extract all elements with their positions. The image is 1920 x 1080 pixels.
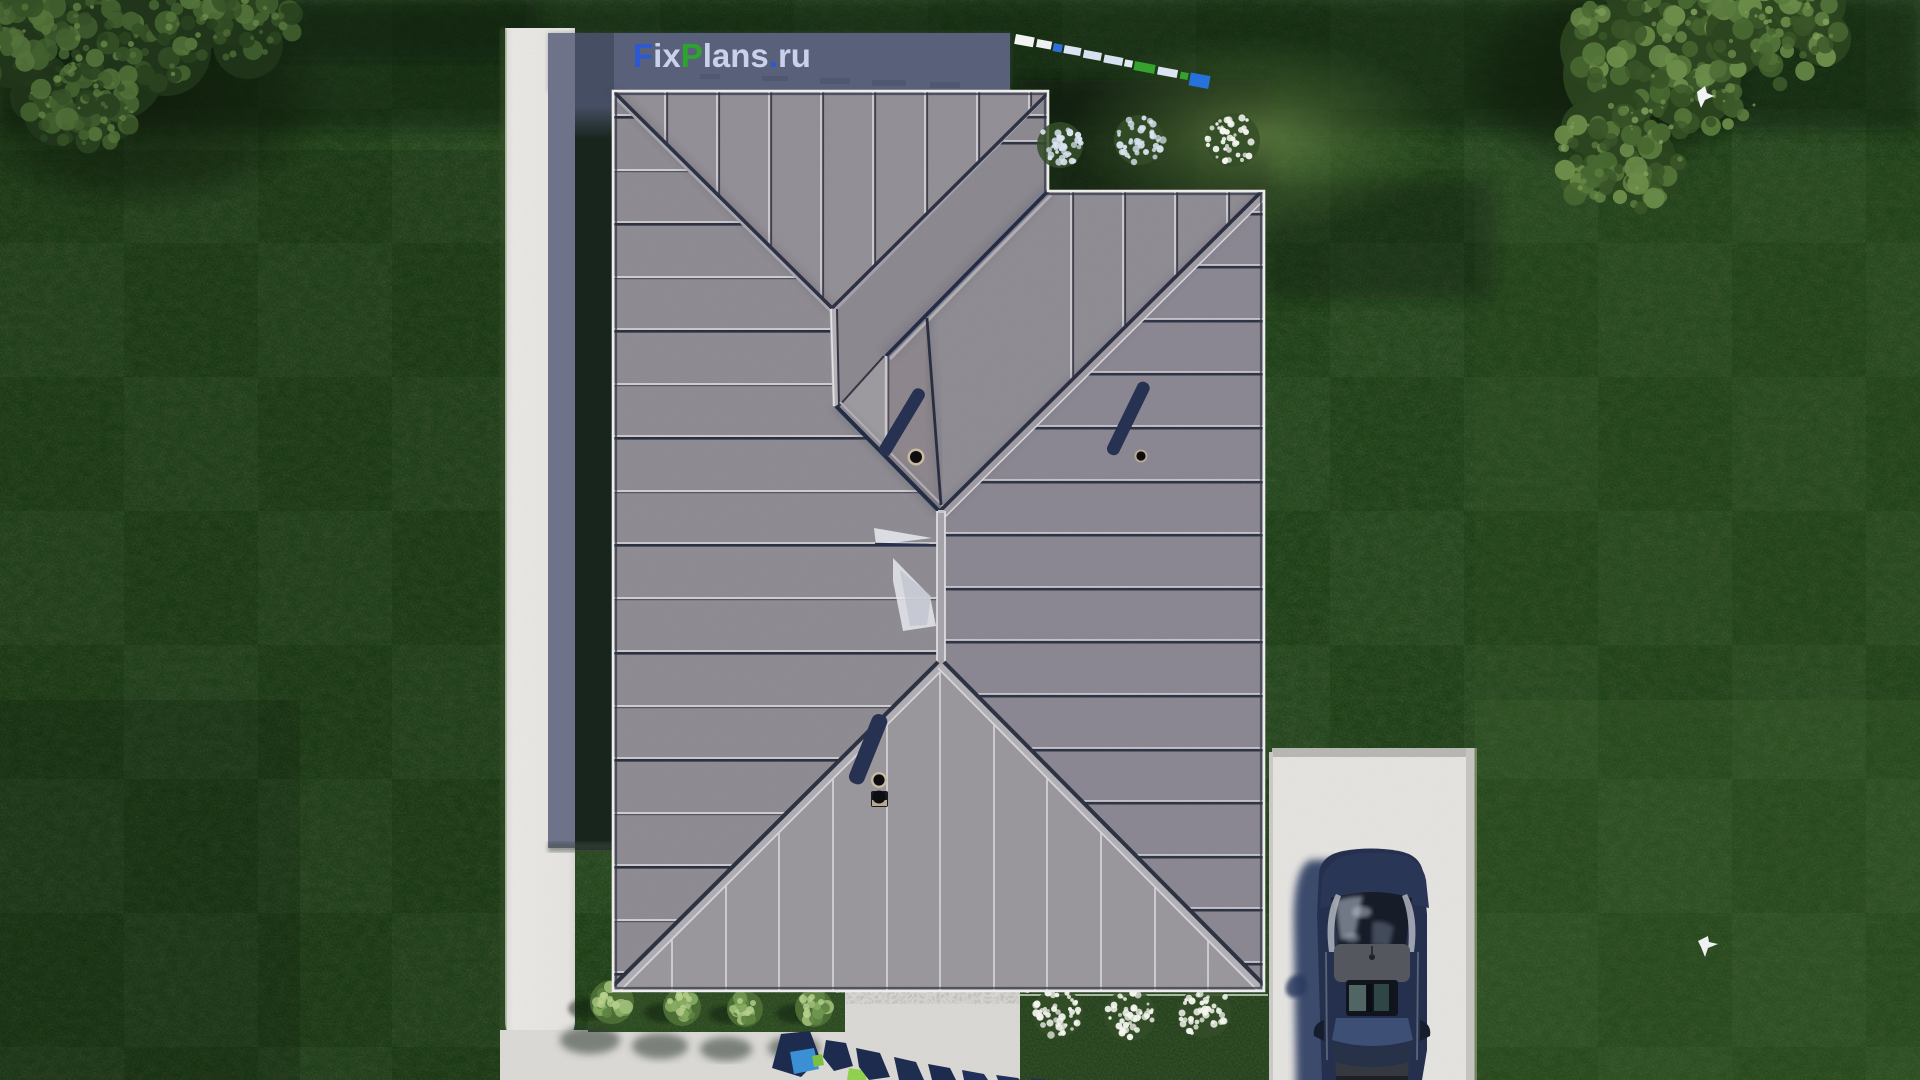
svg-text:FixPlans.ru: FixPlans.ru: [633, 37, 811, 74]
